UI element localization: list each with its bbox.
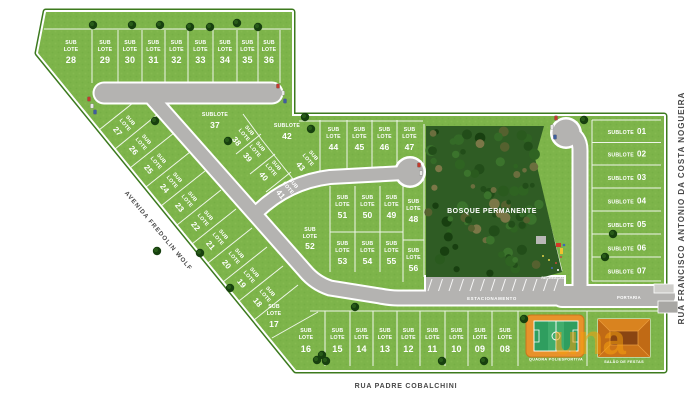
subdivision-map: BOSQUE PERMANENTE RECREAÇÃO PORTARIA EST… (0, 0, 700, 405)
recreation-label: RECREAÇÃO (541, 275, 564, 280)
forest-label: BOSQUE PERMANENTE (447, 208, 537, 215)
gatehouse-building-top (654, 284, 674, 293)
gatehouse-label: PORTARIA (617, 295, 641, 300)
recreation-pad (536, 236, 546, 244)
street-bottom-label: RUA PADRE COBALCHINI (355, 383, 458, 390)
site-plan-page: BOSQUE PERMANENTE RECREAÇÃO PORTARIA EST… (0, 0, 700, 405)
parking-label: ESTACIONAMENTO (467, 296, 517, 301)
gatehouse-building-bottom (658, 301, 678, 313)
street-right-label: RUA FRANCISCO ANTONIO DA COSTA NOGUEIRA (677, 92, 686, 325)
developer-watermark: una (553, 316, 626, 363)
